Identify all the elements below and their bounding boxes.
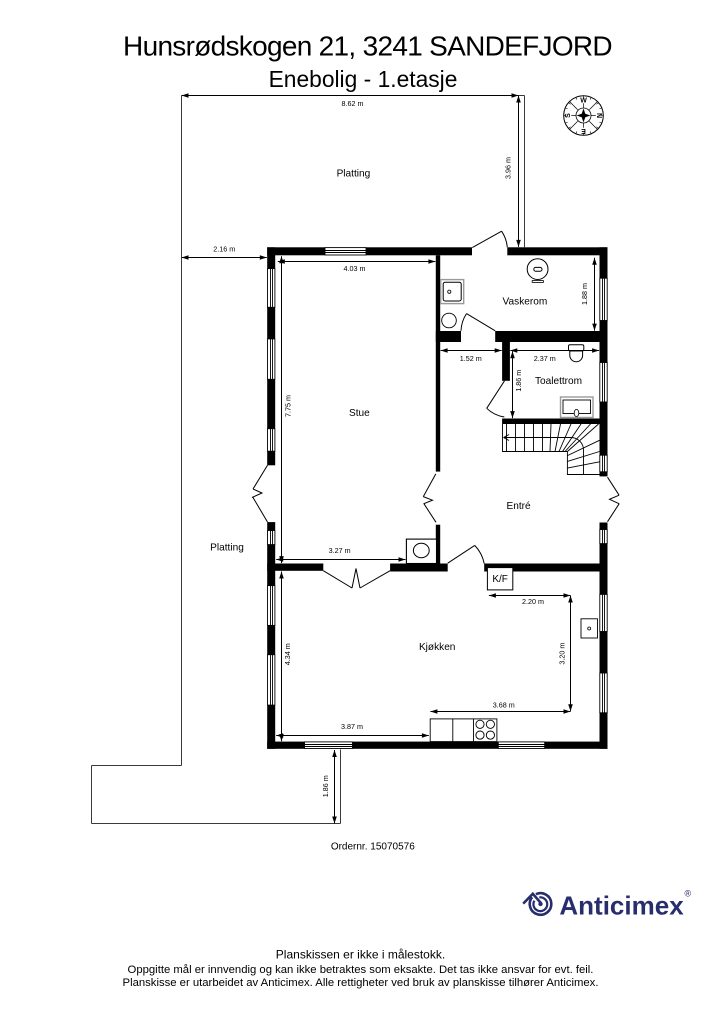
svg-text:1.88 m: 1.88 m	[580, 283, 589, 305]
svg-text:3.27 m: 3.27 m	[329, 546, 351, 555]
svg-text:4.03 m: 4.03 m	[344, 264, 366, 273]
svg-text:Platting: Platting	[210, 543, 244, 554]
svg-text:E: E	[581, 127, 586, 134]
svg-text:N: N	[595, 113, 602, 118]
svg-text:K/F: K/F	[492, 574, 508, 585]
svg-text:3.87 m: 3.87 m	[341, 722, 363, 731]
svg-text:1.86 m: 1.86 m	[514, 370, 523, 392]
svg-text:Hunsrødskogen 21, 3241 SANDEFJ: Hunsrødskogen 21, 3241 SANDEFJORD	[123, 30, 612, 61]
svg-text:7.75 m: 7.75 m	[284, 395, 293, 417]
svg-text:Enebolig - 1.etasje: Enebolig - 1.etasje	[269, 66, 458, 92]
svg-text:Stue: Stue	[349, 408, 370, 419]
svg-text:2.16 m: 2.16 m	[213, 244, 235, 253]
svg-text:Planskissen er ikke i målestok: Planskissen er ikke i målestokk.	[276, 947, 445, 961]
svg-text:Planskisse er utarbeidet av An: Planskisse er utarbeidet av Anticimex. A…	[123, 977, 599, 989]
svg-text:4.34 m: 4.34 m	[283, 643, 292, 665]
svg-text:3.68 m: 3.68 m	[493, 700, 515, 709]
svg-text:8.62 m: 8.62 m	[342, 99, 364, 108]
svg-text:Anticimex: Anticimex	[559, 890, 684, 920]
svg-text:®: ®	[685, 889, 692, 899]
svg-text:Ordernr. 15070576: Ordernr. 15070576	[331, 842, 415, 853]
svg-text:2.37 m: 2.37 m	[534, 354, 556, 363]
svg-text:3.96 m: 3.96 m	[503, 157, 512, 179]
svg-text:Toalettrom: Toalettrom	[535, 376, 582, 387]
svg-text:Entré: Entré	[507, 501, 532, 512]
svg-text:1.52 m: 1.52 m	[460, 354, 482, 363]
svg-text:Vaskerom: Vaskerom	[503, 297, 548, 308]
svg-text:3.20 m: 3.20 m	[558, 643, 567, 665]
svg-text:Kjøkken: Kjøkken	[419, 642, 455, 653]
svg-text:Oppgitte mål er innvendig og k: Oppgitte mål er innvendig og kan ikke be…	[128, 964, 594, 976]
svg-text:W: W	[580, 97, 587, 104]
svg-text:S: S	[565, 113, 572, 118]
svg-text:2.20 m: 2.20 m	[522, 597, 544, 606]
svg-text:Platting: Platting	[337, 168, 371, 179]
svg-text:1.86 m: 1.86 m	[321, 775, 330, 797]
